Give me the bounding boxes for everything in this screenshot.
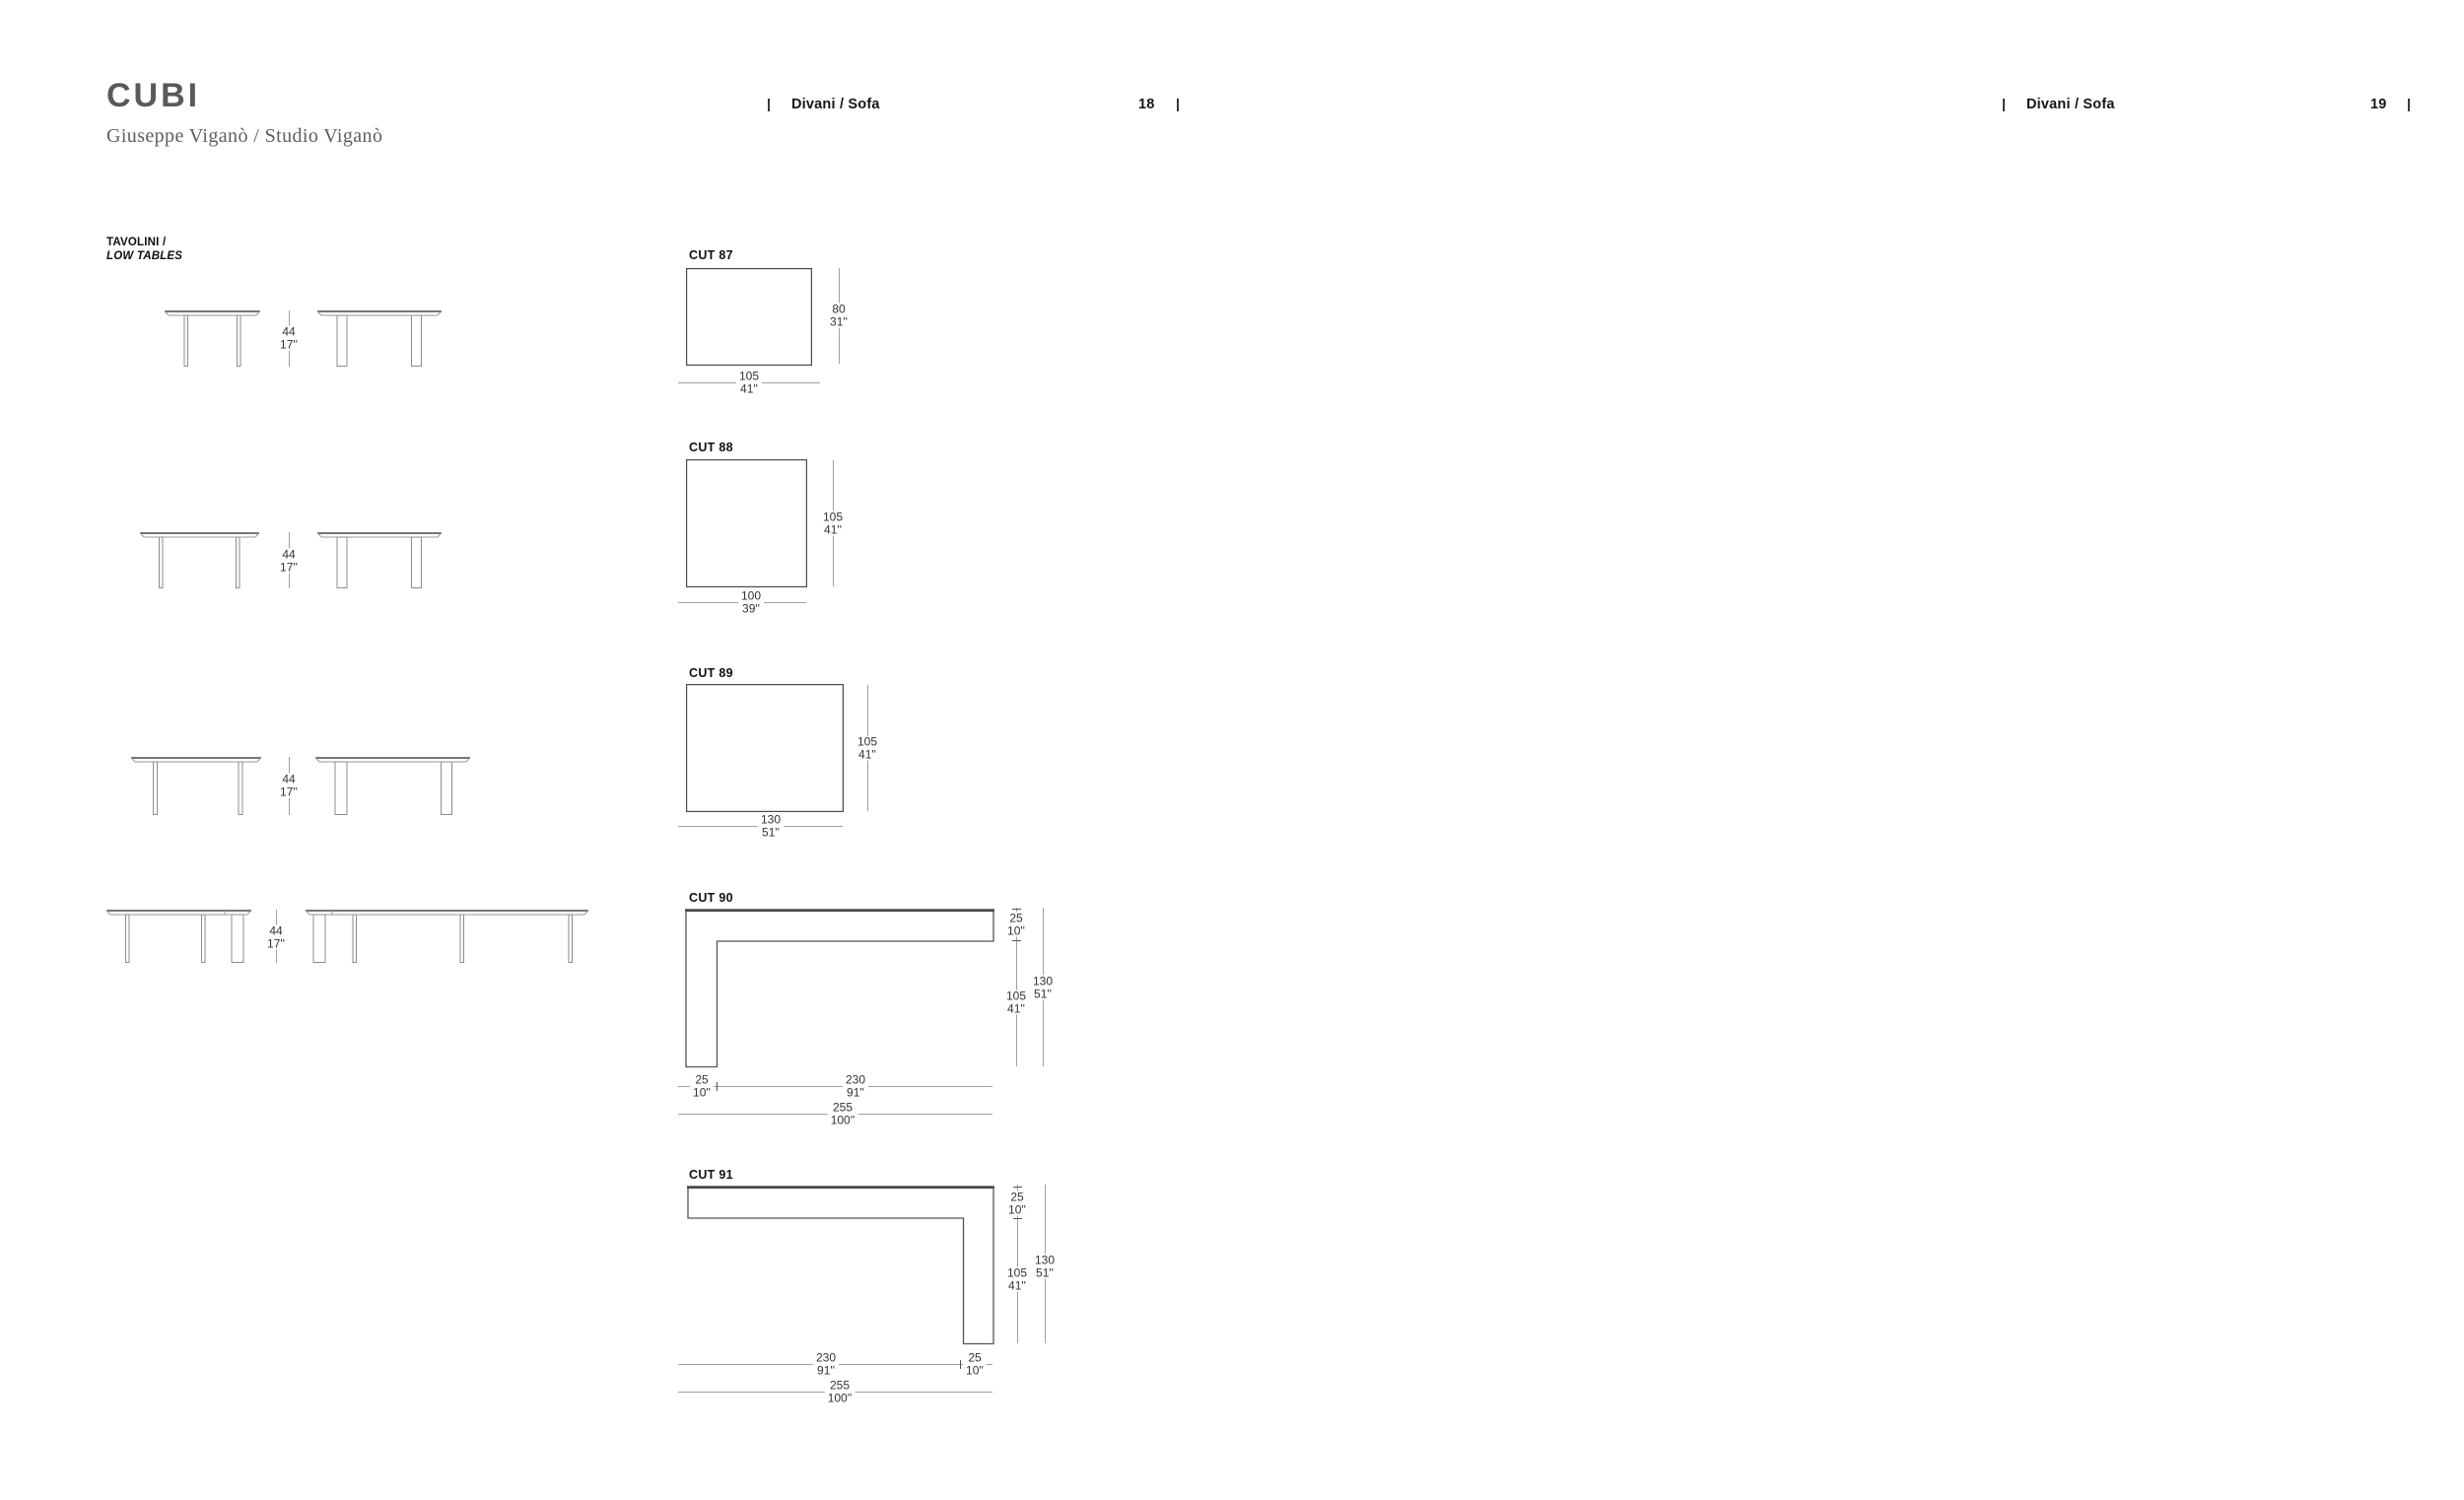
dimension-cm: 230 [846, 1074, 865, 1087]
dimension-cm: 105 [739, 371, 759, 383]
dimension-cm: 255 [833, 1102, 853, 1115]
dimension-cm: 255 [830, 1380, 850, 1393]
dimension-label: 230 91'' [843, 1074, 868, 1099]
dimension-tick [1013, 1187, 1022, 1188]
low-table-drawing-r4-b [306, 910, 588, 963]
dimension-cm: 130 [761, 814, 781, 827]
cut91-top-view [687, 1186, 995, 1345]
dimension-inches: 51'' [1036, 1266, 1054, 1279]
dimension-label: 44 17'' [264, 925, 288, 950]
low-table-drawing-r1-b [317, 310, 442, 367]
cut-name: CUT 87 [689, 248, 733, 262]
dimension-label: 130 51'' [758, 814, 784, 839]
dimension-inches: 39'' [742, 602, 760, 615]
dimension-label: 105 41'' [855, 736, 880, 761]
dimension-inches: 51'' [1034, 988, 1052, 1000]
cut-name: CUT 90 [689, 891, 733, 905]
dimension-cm: 100 [741, 590, 761, 603]
dimension-line [678, 1086, 992, 1087]
low-table-drawing-r4-a [106, 910, 251, 963]
cut87-top-view [686, 268, 812, 366]
section-label-line1: TAVOLINI / [106, 237, 182, 250]
cut89-width-dimension: 130 51'' [678, 815, 843, 838]
header-divider-bar [2408, 99, 2410, 111]
dimension-cm: 105 [1006, 990, 1026, 1003]
dimension-inches: 100'' [828, 1392, 853, 1404]
dimension-label: 25 10'' [963, 1352, 987, 1377]
dimension-cm: 105 [823, 511, 843, 524]
dimension-inches: 51'' [762, 826, 780, 839]
dimension-inches: 10'' [1007, 924, 1025, 937]
low-table-drawing-r3-a [131, 757, 261, 815]
dimension-tick [1012, 940, 1021, 941]
dimension-cm: 25 [1009, 913, 1022, 925]
header-divider-bar [768, 99, 770, 111]
dimension-inches: 91'' [817, 1364, 835, 1377]
section-label-line2: LOW TABLES [106, 250, 182, 264]
dimension-label: 25 10'' [1004, 913, 1028, 937]
low-table-drawing-r2-a [140, 532, 259, 588]
cut91-bottom-dimension-total: 255 100'' [678, 1381, 992, 1403]
dimension-inches: 17'' [280, 338, 298, 351]
dimension-label: 105 41'' [736, 371, 762, 395]
cut-name: CUT 91 [689, 1168, 733, 1182]
dimension-inches: 41'' [824, 523, 842, 536]
header-divider-bar [1177, 99, 1179, 111]
low-table-drawing-r3-b [315, 757, 470, 815]
dimension-inches: 17'' [267, 937, 285, 950]
dimension-cm: 230 [816, 1352, 836, 1365]
dimension-cm: 44 [282, 326, 295, 339]
low-table-drawing-r1-a [165, 310, 260, 367]
dimension-label: 44 17'' [277, 549, 301, 574]
designer-name: Giuseppe Viganò / Studio Viganò [106, 125, 382, 148]
dimension-tick [717, 1082, 718, 1091]
dimension-label: 130 51'' [1030, 976, 1056, 1000]
dimension-cm: 44 [282, 774, 295, 786]
dimension-label: 105 41'' [1004, 1267, 1030, 1292]
dimension-cm: 105 [857, 736, 877, 749]
cut89-top-view [686, 684, 844, 812]
cut90-bottom-dimension-segments: 25 10'' 230 91'' [678, 1075, 992, 1098]
running-header-section-right: Divani / Sofa [2026, 97, 2115, 112]
dimension-inches: 31'' [830, 315, 848, 328]
dimension-inches: 41'' [1007, 1002, 1025, 1015]
dimension-inches: 17'' [280, 785, 298, 798]
dimension-label: 105 41'' [1003, 990, 1029, 1015]
dimension-cm: 80 [832, 304, 845, 316]
dimension-label: 44 17'' [277, 326, 301, 351]
product-title: CUBI [106, 77, 200, 115]
dimension-inches: 41'' [858, 748, 876, 761]
dimension-cm: 44 [269, 925, 282, 938]
header-divider-bar [2003, 99, 2005, 111]
dimension-inches: 41'' [1008, 1279, 1026, 1292]
dimension-cm: 44 [282, 549, 295, 562]
dimension-label: 105 41'' [820, 511, 846, 536]
dimension-cm: 105 [1007, 1267, 1027, 1280]
dimension-label: 230 91'' [813, 1352, 839, 1377]
dimension-inches: 10'' [693, 1086, 711, 1099]
dimension-label: 25 10'' [690, 1074, 714, 1099]
dimension-label: 44 17'' [277, 774, 301, 798]
cut88-top-view [686, 459, 807, 587]
cut-name: CUT 89 [689, 666, 733, 680]
dimension-tick [1013, 1218, 1022, 1219]
page-number-left: 18 [1138, 97, 1155, 112]
cut90-top-view [685, 909, 995, 1068]
dimension-label: 130 51'' [1032, 1255, 1058, 1279]
dimension-tick [1012, 909, 1021, 910]
dimension-inches: 10'' [1008, 1203, 1026, 1216]
dimension-cm: 25 [1010, 1192, 1023, 1204]
dimension-inches: 91'' [847, 1086, 864, 1099]
dimension-label: 80 31'' [827, 304, 851, 328]
dimension-inches: 17'' [280, 561, 298, 574]
dimension-inches: 10'' [966, 1364, 984, 1377]
dimension-tick [960, 1360, 961, 1369]
dimension-label: 255 100'' [828, 1102, 858, 1126]
catalog-page: CUBI Giuseppe Viganò / Studio Viganò Div… [0, 0, 2464, 1500]
dimension-inches: 41'' [740, 382, 758, 395]
page-number-right: 19 [2370, 97, 2387, 112]
dimension-cm: 130 [1035, 1255, 1055, 1267]
dimension-label: 255 100'' [825, 1380, 856, 1404]
cut88-width-dimension: 100 39'' [678, 591, 806, 614]
cut87-width-dimension: 105 41'' [678, 372, 820, 394]
low-table-drawing-r2-b [317, 532, 442, 588]
dimension-cm: 130 [1033, 976, 1053, 989]
section-label: TAVOLINI / LOW TABLES [106, 237, 182, 263]
dimension-label: 100 39'' [738, 590, 764, 615]
dimension-label: 25 10'' [1005, 1192, 1029, 1216]
cut91-bottom-dimension-segments: 230 91'' 25 10'' [678, 1353, 992, 1376]
dimension-cm: 25 [968, 1352, 981, 1365]
dimension-cm: 25 [695, 1074, 708, 1087]
cut-name: CUT 88 [689, 441, 733, 454]
dimension-inches: 100'' [831, 1114, 856, 1126]
cut90-bottom-dimension-total: 255 100'' [678, 1103, 992, 1125]
running-header-section-left: Divani / Sofa [791, 97, 880, 112]
